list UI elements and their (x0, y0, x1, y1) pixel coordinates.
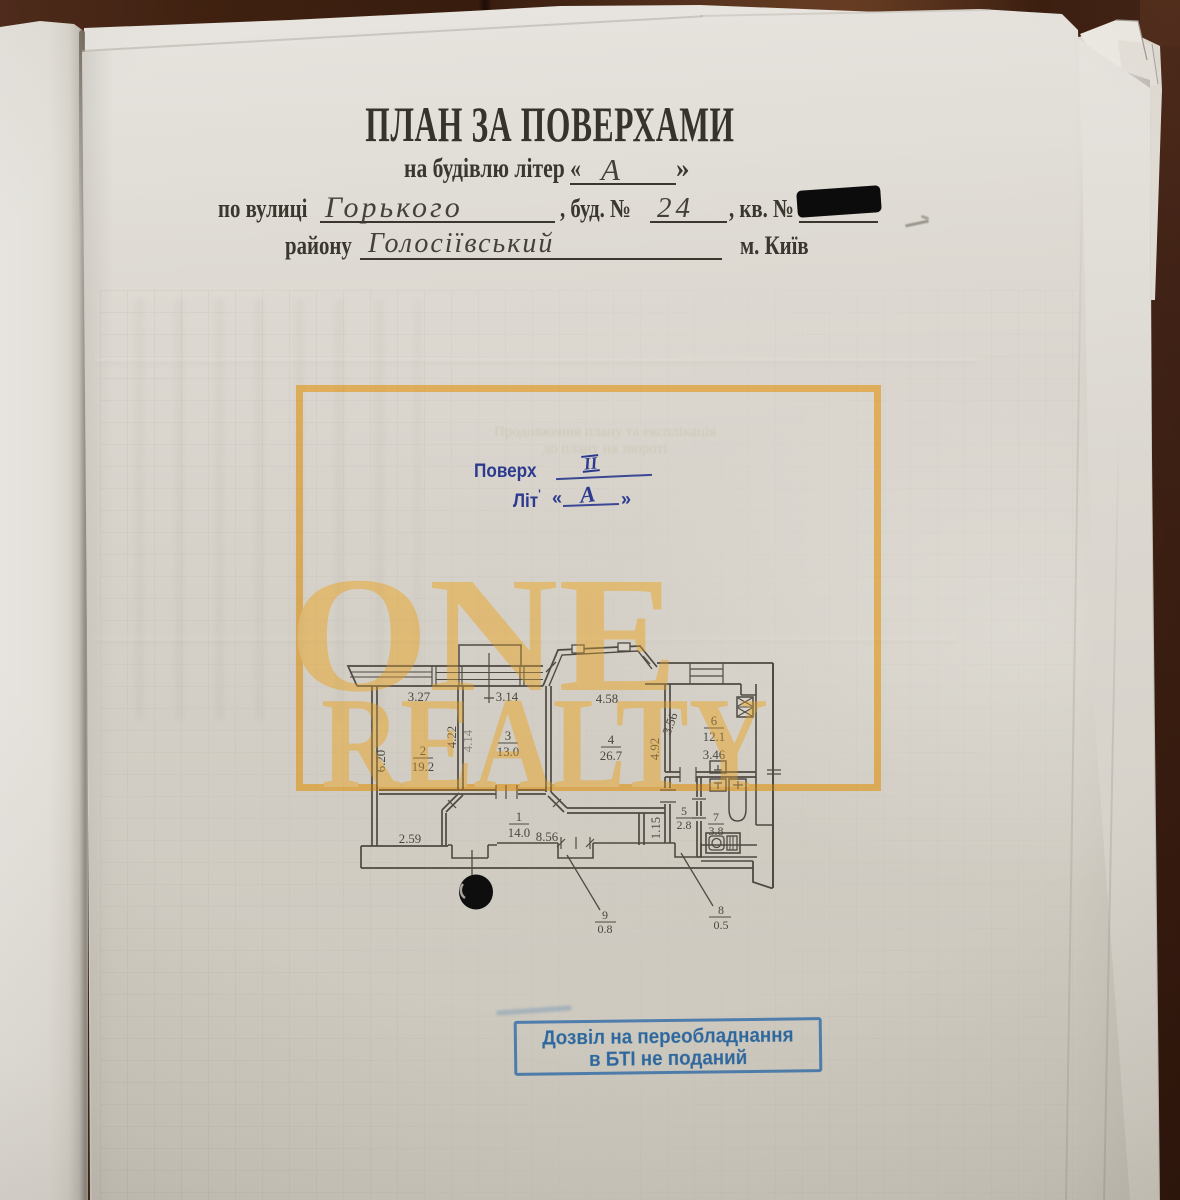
svg-text:REALTY: REALTY (321, 671, 768, 816)
